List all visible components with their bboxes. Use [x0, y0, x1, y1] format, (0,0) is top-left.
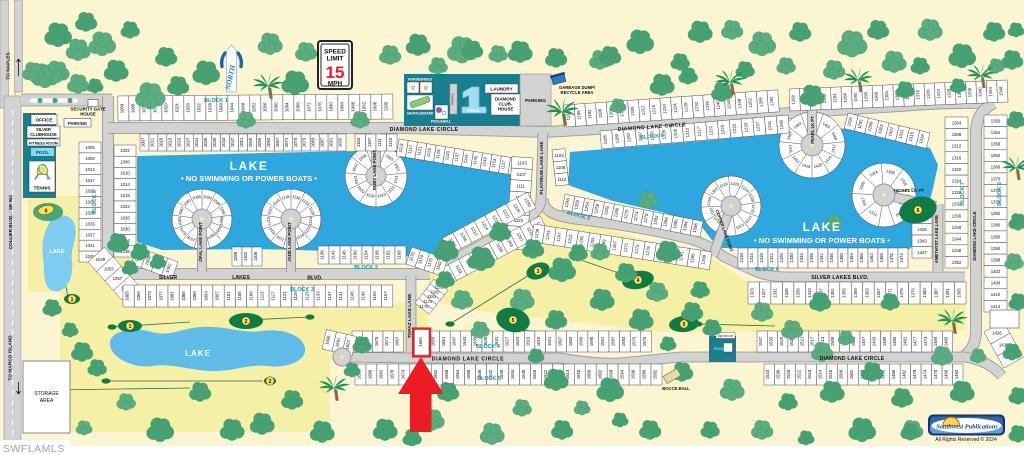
svg-text:1020: 1020	[163, 103, 168, 113]
svg-text:1098: 1098	[233, 251, 238, 261]
svg-text:1053: 1053	[104, 267, 114, 272]
svg-text:MPH: MPH	[328, 81, 343, 88]
svg-text:AMETHYST LAKE LANE: AMETHYST LAKE LANE	[934, 215, 939, 263]
svg-text:1591: 1591	[600, 336, 605, 346]
svg-text:1: 1	[129, 324, 132, 330]
svg-text:LAKE: LAKE	[803, 220, 842, 234]
svg-text:1336: 1336	[967, 87, 972, 97]
svg-text:LAKE: LAKE	[230, 159, 269, 173]
svg-text:6: 6	[917, 208, 920, 214]
svg-text:1091: 1091	[329, 137, 334, 147]
svg-text:1587: 1587	[610, 336, 615, 346]
svg-text:1647: 1647	[452, 336, 457, 346]
svg-text:1006: 1006	[120, 159, 130, 164]
svg-text:1414: 1414	[991, 304, 1001, 309]
svg-text:1088: 1088	[218, 217, 224, 226]
svg-text:1089: 1089	[192, 291, 197, 301]
svg-text:1018: 1018	[120, 193, 130, 198]
svg-text:1093: 1093	[203, 291, 208, 301]
svg-text:1145: 1145	[349, 291, 354, 301]
svg-text:1485: 1485	[892, 336, 897, 346]
svg-text:1366: 1366	[879, 253, 884, 263]
svg-text:HOUSE: HOUSE	[80, 112, 96, 117]
svg-text:PICKLEBALL: PICKLEBALL	[431, 120, 451, 124]
svg-text:1017: 1017	[85, 178, 95, 183]
svg-text:1083: 1083	[177, 217, 183, 226]
svg-text:1154: 1154	[364, 250, 369, 260]
svg-text:BLOCK 7: BLOCK 7	[960, 182, 966, 206]
svg-text:1489: 1489	[882, 336, 887, 346]
svg-text:1213: 1213	[684, 127, 690, 138]
svg-text:1358: 1358	[859, 253, 864, 263]
svg-text:BLOCK 2: BLOCK 2	[354, 265, 378, 271]
svg-text:1220: 1220	[662, 103, 668, 113]
svg-text:3: 3	[537, 269, 540, 275]
svg-text:2: 2	[245, 319, 248, 325]
svg-text:1350: 1350	[991, 118, 1001, 123]
svg-text:1022: 1022	[120, 204, 130, 209]
svg-text:1008: 1008	[130, 103, 135, 113]
svg-text:1586: 1586	[642, 369, 647, 379]
svg-text:1035: 1035	[203, 137, 208, 147]
svg-text:1047: 1047	[230, 137, 235, 147]
svg-text:1103: 1103	[517, 161, 527, 166]
svg-text:1101: 1101	[226, 291, 231, 301]
svg-text:PARKING: PARKING	[68, 121, 87, 126]
svg-text:SPEED: SPEED	[324, 49, 346, 56]
svg-text:1188: 1188	[576, 110, 582, 120]
svg-text:1100: 1100	[383, 101, 388, 111]
svg-text:1111: 1111	[377, 138, 382, 147]
svg-text:1362: 1362	[991, 153, 1001, 158]
svg-text:1473: 1473	[923, 336, 928, 346]
svg-text:1027: 1027	[185, 137, 190, 147]
svg-text:1594: 1594	[620, 369, 625, 379]
svg-text:1340: 1340	[977, 87, 982, 97]
svg-text:1217: 1217	[696, 126, 702, 137]
svg-text:1398: 1398	[991, 258, 1001, 263]
svg-text:AREA: AREA	[40, 398, 54, 404]
svg-text:1067: 1067	[275, 137, 280, 147]
svg-text:1626: 1626	[532, 369, 537, 379]
svg-text:1102: 1102	[243, 251, 248, 261]
svg-text:RECYCLE AREA: RECYCLE AREA	[561, 90, 594, 95]
svg-text:1590: 1590	[631, 369, 636, 379]
svg-text:1477: 1477	[913, 336, 918, 346]
svg-text:1103: 1103	[356, 137, 361, 147]
svg-text:1651: 1651	[441, 336, 446, 346]
svg-text:LIMIT: LIMIT	[327, 56, 344, 63]
svg-text:1112: 1112	[557, 177, 567, 182]
svg-text:1630: 1630	[521, 369, 526, 379]
svg-text:1382: 1382	[991, 211, 1001, 216]
svg-text:1659: 1659	[418, 337, 423, 347]
svg-text:1367: 1367	[876, 288, 881, 298]
svg-text:1009: 1009	[85, 156, 95, 161]
svg-text:1627: 1627	[504, 336, 509, 346]
svg-text:1493: 1493	[872, 336, 877, 346]
svg-text:1208: 1208	[630, 106, 636, 116]
svg-text:1292: 1292	[853, 92, 858, 102]
svg-text:1465: 1465	[944, 336, 949, 346]
svg-text:TENNIS: TENNIS	[34, 186, 51, 191]
svg-text:1330: 1330	[789, 253, 794, 263]
svg-text:1072: 1072	[306, 102, 311, 112]
svg-text:PARKING: PARKING	[451, 93, 455, 104]
svg-text:1517: 1517	[810, 336, 815, 346]
svg-text:1065: 1065	[125, 291, 130, 301]
svg-text:5: 5	[512, 318, 515, 324]
svg-text:1166: 1166	[397, 250, 402, 260]
svg-text:COLLIER BLVD. - SR 951: COLLIER BLVD. - SR 951	[8, 194, 13, 249]
svg-text:1241: 1241	[767, 120, 773, 131]
svg-text:1323: 1323	[750, 288, 755, 298]
svg-text:1244: 1244	[726, 99, 732, 109]
svg-text:1350: 1350	[839, 253, 844, 263]
svg-text:1023: 1023	[176, 137, 181, 147]
svg-text:1252: 1252	[747, 97, 753, 107]
svg-text:1338: 1338	[809, 253, 814, 263]
svg-text:1521: 1521	[799, 336, 804, 346]
svg-text:1296: 1296	[863, 91, 868, 101]
svg-text:1105: 1105	[237, 291, 242, 301]
svg-text:1391: 1391	[945, 288, 950, 298]
svg-text:1142: 1142	[331, 250, 336, 260]
svg-text:1331: 1331	[773, 288, 778, 298]
svg-text:1318: 1318	[759, 253, 764, 263]
svg-text:1314: 1314	[749, 253, 754, 263]
svg-text:1358: 1358	[991, 142, 1001, 147]
svg-text:1675: 1675	[374, 336, 379, 346]
svg-text:All Rights Reserved © 2024: All Rights Reserved © 2024	[935, 436, 997, 443]
svg-text:1228: 1228	[683, 102, 689, 112]
svg-text:1370: 1370	[991, 176, 1001, 181]
svg-text:1390: 1390	[991, 234, 1001, 239]
svg-text:Ω: Ω	[411, 86, 415, 92]
svg-text:1284: 1284	[832, 93, 837, 103]
svg-text:1682: 1682	[378, 369, 383, 379]
svg-text:1346: 1346	[829, 253, 834, 263]
svg-text:1336: 1336	[952, 213, 962, 218]
svg-text:1055: 1055	[248, 137, 253, 147]
svg-text:1162: 1162	[386, 250, 391, 260]
svg-text:1109: 1109	[248, 291, 253, 301]
svg-text:TO MARCO ISLAND: TO MARCO ISLAND	[8, 335, 14, 381]
svg-text:1076: 1076	[317, 102, 322, 112]
svg-text:1379: 1379	[910, 288, 915, 298]
svg-text:1426: 1426	[992, 330, 1002, 335]
svg-text:1304: 1304	[952, 120, 962, 125]
svg-text:1387: 1387	[933, 288, 938, 298]
svg-text:15: 15	[326, 63, 345, 82]
svg-text:1115: 1115	[388, 137, 393, 147]
svg-text:1375: 1375	[899, 288, 904, 298]
svg-text:1097: 1097	[215, 291, 220, 301]
svg-text:1088: 1088	[350, 101, 355, 111]
svg-text:1056: 1056	[262, 102, 267, 112]
svg-text:OPAL LAKE POINT: OPAL LAKE POINT	[198, 222, 203, 262]
svg-text:1402: 1402	[991, 269, 1001, 274]
svg-text:1059: 1059	[257, 137, 262, 147]
svg-text:1030: 1030	[120, 227, 130, 232]
svg-text:1149: 1149	[361, 291, 366, 301]
svg-text:1482: 1482	[901, 369, 906, 379]
svg-text:1068: 1068	[295, 102, 300, 112]
svg-text:1212: 1212	[640, 105, 646, 115]
svg-text:FITNESS ROOM: FITNESS ROOM	[29, 142, 58, 146]
svg-text:1518: 1518	[807, 369, 812, 379]
svg-text:1344: 1344	[952, 237, 962, 242]
svg-text:PLATINUM LAKE LANE: PLATINUM LAKE LANE	[539, 141, 545, 195]
svg-text:1096: 1096	[372, 101, 377, 111]
svg-text:1537: 1537	[758, 336, 763, 346]
svg-text:1534: 1534	[765, 369, 770, 379]
svg-text:1069: 1069	[136, 291, 141, 301]
svg-text:1497: 1497	[861, 336, 866, 346]
svg-text:1310: 1310	[739, 253, 744, 263]
svg-text:1674: 1674	[400, 369, 405, 379]
svg-text:1092: 1092	[361, 101, 366, 111]
svg-text:1075: 1075	[293, 137, 298, 147]
svg-text:1514: 1514	[818, 369, 823, 379]
svg-text:1048: 1048	[240, 102, 245, 112]
svg-text:1288: 1288	[842, 92, 847, 102]
svg-text:1015: 1015	[158, 137, 163, 147]
svg-text:LAKES: LAKES	[232, 275, 250, 281]
svg-text:1043: 1043	[221, 137, 226, 147]
svg-text:1634: 1634	[510, 369, 515, 379]
svg-text:RUBY LAKE POINT: RUBY LAKE POINT	[372, 150, 377, 190]
svg-text:1150: 1150	[353, 250, 358, 260]
svg-text:1466: 1466	[943, 369, 948, 379]
svg-text:1232: 1232	[694, 101, 700, 111]
svg-text:1039: 1039	[212, 137, 217, 147]
svg-text:1158: 1158	[375, 250, 380, 260]
svg-text:RESTROOM: RESTROOM	[718, 334, 733, 338]
svg-text:1304: 1304	[884, 90, 889, 100]
svg-text:PEARL LK PT: PEARL LK PT	[810, 116, 815, 144]
svg-text:1344: 1344	[988, 86, 993, 96]
svg-text:Ω: Ω	[424, 86, 428, 92]
svg-text:BLOCK 4: BLOCK 4	[476, 344, 500, 350]
svg-text:1370: 1370	[889, 253, 894, 263]
svg-text:1236: 1236	[705, 100, 711, 110]
svg-text:1386: 1386	[991, 223, 1001, 228]
svg-text:1469: 1469	[933, 336, 938, 346]
svg-text:1113: 1113	[260, 291, 265, 301]
svg-text:1080: 1080	[328, 102, 333, 112]
svg-text:1081: 1081	[170, 291, 175, 301]
svg-text:JADE LAKE POINT: JADE LAKE POINT	[287, 222, 292, 262]
svg-text:1320: 1320	[925, 89, 930, 99]
svg-text:NICKEL LK PT: NICKEL LK PT	[894, 188, 924, 193]
svg-text:1013: 1013	[85, 167, 95, 172]
svg-text:1221: 1221	[708, 125, 714, 136]
svg-text:1506: 1506	[839, 369, 844, 379]
svg-text:1502: 1502	[849, 369, 854, 379]
svg-text:1619: 1619	[526, 336, 531, 346]
svg-text:1117: 1117	[271, 291, 276, 301]
svg-text:1509: 1509	[830, 336, 835, 346]
svg-text:1037: 1037	[85, 232, 95, 237]
svg-text:1106: 1106	[253, 251, 258, 261]
svg-text:LAUNDRY: LAUNDRY	[490, 87, 512, 92]
svg-text:5: 5	[683, 322, 686, 328]
svg-text:1615: 1615	[536, 336, 541, 346]
svg-text:DIAMOND LAKE CIRCLE: DIAMOND LAKE CIRCLE	[972, 211, 977, 261]
svg-text:1193: 1193	[626, 132, 632, 142]
svg-text:BLOCK 5: BLOCK 5	[997, 182, 1003, 206]
svg-text:1216: 1216	[651, 104, 657, 114]
svg-text:TO NAPLES: TO NAPLES	[6, 52, 12, 80]
svg-text:TOPAZ LAKE LANE: TOPAZ LAKE LANE	[407, 293, 413, 338]
svg-text:1224: 1224	[672, 103, 678, 113]
svg-text:1005: 1005	[85, 145, 95, 150]
svg-text:1607: 1607	[557, 336, 562, 346]
svg-text:1603: 1603	[568, 336, 573, 346]
svg-text:1348: 1348	[952, 248, 962, 253]
svg-text:1342: 1342	[819, 253, 824, 263]
svg-text:1192: 1192	[587, 109, 593, 119]
svg-text:1209: 1209	[673, 128, 679, 139]
svg-text:1060: 1060	[273, 102, 278, 112]
svg-text:HOUSE: HOUSE	[498, 107, 514, 112]
svg-text:1374: 1374	[899, 253, 904, 263]
svg-text:1354: 1354	[991, 130, 1001, 135]
svg-text:1138: 1138	[320, 250, 325, 260]
svg-text:1073: 1073	[147, 291, 152, 301]
svg-text:1355: 1355	[842, 288, 847, 298]
svg-text:LAKE: LAKE	[185, 349, 211, 358]
svg-text:1268: 1268	[790, 94, 795, 104]
svg-text:1312: 1312	[952, 144, 962, 149]
svg-text:1031: 1031	[194, 137, 199, 147]
svg-text:1083: 1083	[311, 137, 316, 147]
svg-text:BLOCK 1: BLOCK 1	[204, 98, 228, 104]
svg-text:1320: 1320	[952, 167, 962, 172]
svg-text:1650: 1650	[466, 369, 471, 379]
svg-text:1107: 1107	[517, 172, 527, 177]
svg-text:1: 1	[71, 297, 74, 303]
svg-text:1623: 1623	[515, 336, 520, 346]
svg-text:1260: 1260	[769, 96, 775, 106]
svg-text:SHUFFLEBOARD: SHUFFLEBOARD	[407, 112, 434, 116]
svg-text:1189: 1189	[614, 133, 620, 143]
svg-text:1237: 1237	[755, 121, 761, 132]
svg-text:1478: 1478	[912, 369, 917, 379]
svg-text:SWFLAMLS: SWFLAMLS	[3, 443, 65, 455]
svg-text:1583: 1583	[621, 336, 626, 346]
svg-text:1486: 1486	[891, 369, 896, 379]
svg-text:1654: 1654	[455, 369, 460, 379]
svg-text:BLVD.: BLVD.	[307, 276, 323, 282]
svg-text:1462: 1462	[954, 369, 959, 379]
svg-text:1611: 1611	[547, 336, 552, 346]
svg-text:1575: 1575	[642, 336, 647, 346]
svg-text:1530: 1530	[776, 369, 781, 379]
svg-text:1347: 1347	[917, 250, 927, 255]
svg-text:1383: 1383	[922, 288, 927, 298]
svg-text:1052: 1052	[251, 102, 256, 112]
svg-text:BOCCE BALL: BOCCE BALL	[662, 386, 690, 391]
svg-text:1123: 1123	[266, 217, 272, 226]
svg-text:1316: 1316	[952, 155, 962, 160]
svg-text:SILVER LAKES BLVD.: SILVER LAKES BLVD.	[811, 275, 869, 281]
svg-text:1004: 1004	[119, 103, 124, 113]
svg-text:1339: 1339	[917, 227, 927, 232]
svg-text:1481: 1481	[902, 336, 907, 346]
svg-text:OFFICE: OFFICE	[36, 118, 53, 123]
svg-text:1602: 1602	[598, 369, 603, 379]
svg-text:1316: 1316	[915, 89, 920, 99]
svg-text:1044: 1044	[229, 102, 234, 112]
svg-text:1395: 1395	[956, 288, 961, 298]
svg-text:1108: 1108	[556, 165, 566, 170]
svg-text:POOL: POOL	[714, 347, 725, 351]
svg-text:1394: 1394	[991, 246, 1001, 251]
svg-text:1643: 1643	[462, 336, 467, 346]
svg-text:1153: 1153	[372, 291, 377, 301]
svg-text:0: 0	[45, 209, 48, 215]
svg-text:1352: 1352	[952, 260, 962, 265]
svg-text:1610: 1610	[576, 369, 581, 379]
svg-text:DIAMOND LAKE CIRCLE: DIAMOND LAKE CIRCLE	[820, 356, 885, 362]
svg-text:1340: 1340	[952, 225, 962, 230]
svg-text:1526: 1526	[786, 369, 791, 379]
svg-text:1322: 1322	[769, 253, 774, 263]
svg-text:1041: 1041	[85, 243, 95, 248]
svg-text:1026: 1026	[120, 215, 130, 220]
svg-text:1032: 1032	[196, 103, 201, 113]
svg-text:1300: 1300	[874, 91, 879, 101]
svg-text:1599: 1599	[579, 336, 584, 346]
svg-text:1146: 1146	[342, 250, 347, 260]
svg-text:1014: 1014	[120, 182, 130, 187]
svg-text:1107: 1107	[367, 137, 372, 147]
svg-text:1343: 1343	[807, 288, 812, 298]
svg-text:1104: 1104	[554, 153, 564, 158]
svg-text:1343: 1343	[917, 238, 927, 243]
svg-text:1671: 1671	[384, 336, 389, 346]
svg-text:1662: 1662	[433, 369, 438, 379]
svg-text:1667: 1667	[395, 336, 400, 346]
svg-text:1095: 1095	[338, 137, 343, 147]
svg-text:1057: 1057	[113, 276, 123, 281]
svg-text:1324: 1324	[936, 88, 941, 98]
svg-text:1354: 1354	[849, 253, 854, 263]
svg-text:BLOCK 6: BLOCK 6	[755, 267, 779, 273]
svg-text:Southwest Publications: Southwest Publications	[936, 424, 998, 431]
svg-text:1141: 1141	[338, 291, 343, 301]
svg-text:2: 2	[269, 379, 272, 385]
svg-text:SILVER: SILVER	[159, 275, 178, 281]
svg-text:1335: 1335	[784, 288, 789, 298]
svg-text:1077: 1077	[158, 291, 163, 301]
svg-text:1024: 1024	[174, 103, 179, 113]
svg-text:1470: 1470	[933, 369, 938, 379]
svg-text:1326: 1326	[779, 253, 784, 263]
svg-text:1362: 1362	[869, 253, 874, 263]
svg-text:1124: 1124	[307, 216, 313, 226]
svg-text:1522: 1522	[797, 369, 802, 379]
svg-text:DIAMOND LAKE CIRCLE: DIAMOND LAKE CIRCLE	[390, 127, 459, 133]
svg-text:1533: 1533	[769, 336, 774, 346]
svg-text:1351: 1351	[830, 288, 835, 298]
svg-text:1348: 1348	[998, 86, 1003, 96]
svg-text:1028: 1028	[185, 103, 190, 113]
svg-text:1510: 1510	[828, 369, 833, 379]
svg-text:1196: 1196	[597, 108, 603, 118]
